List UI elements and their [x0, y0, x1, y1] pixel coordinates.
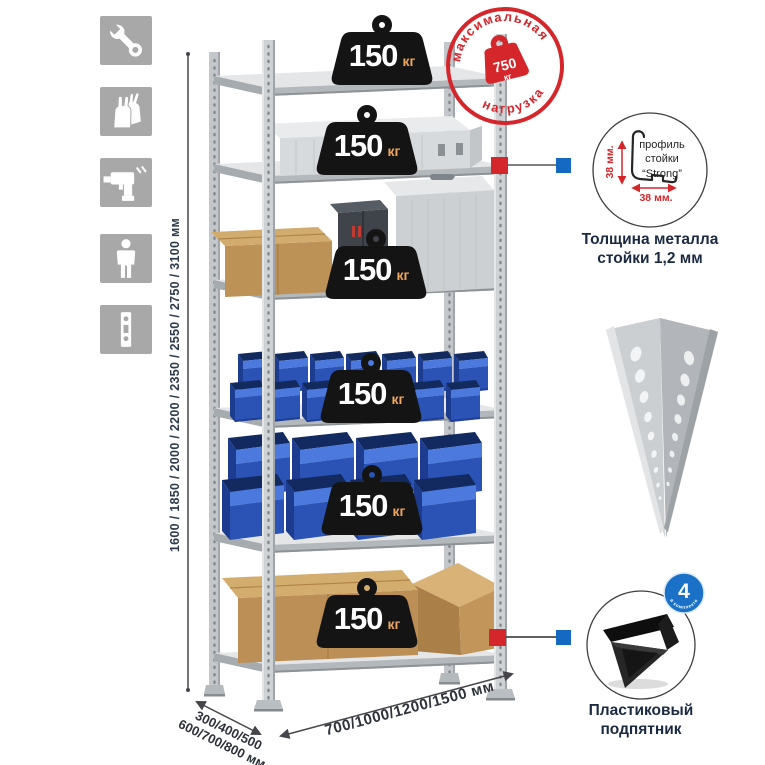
shelf-load-badge: 150кг	[319, 352, 423, 432]
shelving-infographic: 1600 / 1850 / 2000 / 2200 / 2350 / 2550 …	[0, 0, 765, 765]
badge-unit: кг	[391, 392, 404, 406]
stamp-arc-bottom: нагрузка	[477, 82, 550, 124]
gloves-icon	[100, 87, 152, 136]
wrench-icon	[100, 16, 152, 65]
height-dimension-label: 1600 / 1850 / 2000 / 2200 / 2350 / 2550 …	[168, 175, 182, 595]
profile-label: профиль стойки “Strong”	[634, 138, 690, 181]
foot-caption-line1: Пластиковый	[573, 701, 709, 720]
profile-label-line3: “Strong”	[634, 167, 690, 181]
badge-unit: кг	[387, 617, 400, 631]
badge-unit: кг	[387, 144, 400, 158]
included-count-badge: 4 в комплекте	[661, 570, 707, 616]
svg-text:нагрузка: нагрузка	[477, 82, 550, 124]
foot-caption: Пластиковый подпятник	[573, 701, 709, 740]
person-icon	[100, 234, 152, 283]
badge-unit: кг	[402, 54, 415, 68]
foot-caption-line2: подпятник	[573, 720, 709, 739]
badge-value: 150	[334, 603, 383, 634]
shelf-load-badge: 150кг	[315, 577, 419, 657]
profile-vertical-dimension: 38 мм.	[604, 137, 616, 187]
badge-value: 150	[338, 378, 387, 409]
included-count-value: 4	[678, 580, 690, 603]
profile-caption-line2: стойки 1,2 мм	[570, 249, 730, 268]
badge-value: 150	[339, 490, 388, 521]
badge-unit: кг	[392, 504, 405, 518]
profile-label-line2: стойки	[634, 152, 690, 166]
profile-caption-line1: Толщина металла	[570, 230, 730, 249]
shelf-load-badge: 150кг	[315, 104, 419, 184]
profile-caption: Толщина металла стойки 1,2 мм	[570, 230, 730, 269]
badge-value: 150	[349, 40, 398, 71]
angle-profile-image	[606, 318, 718, 538]
badge-unit: кг	[396, 268, 409, 282]
perforated-post-icon	[100, 305, 152, 354]
badge-value: 150	[334, 130, 383, 161]
profile-label-line1: профиль	[634, 138, 690, 152]
badge-value: 150	[343, 254, 392, 285]
profile-horizontal-dimension: 38 мм.	[628, 192, 684, 204]
drill-icon	[100, 158, 152, 207]
shelf-load-badge: 150кг	[324, 228, 428, 308]
height-dimension-line	[186, 52, 190, 692]
shelf-load-badge: 150кг	[330, 14, 434, 94]
shelf-load-badge: 150кг	[320, 464, 424, 544]
